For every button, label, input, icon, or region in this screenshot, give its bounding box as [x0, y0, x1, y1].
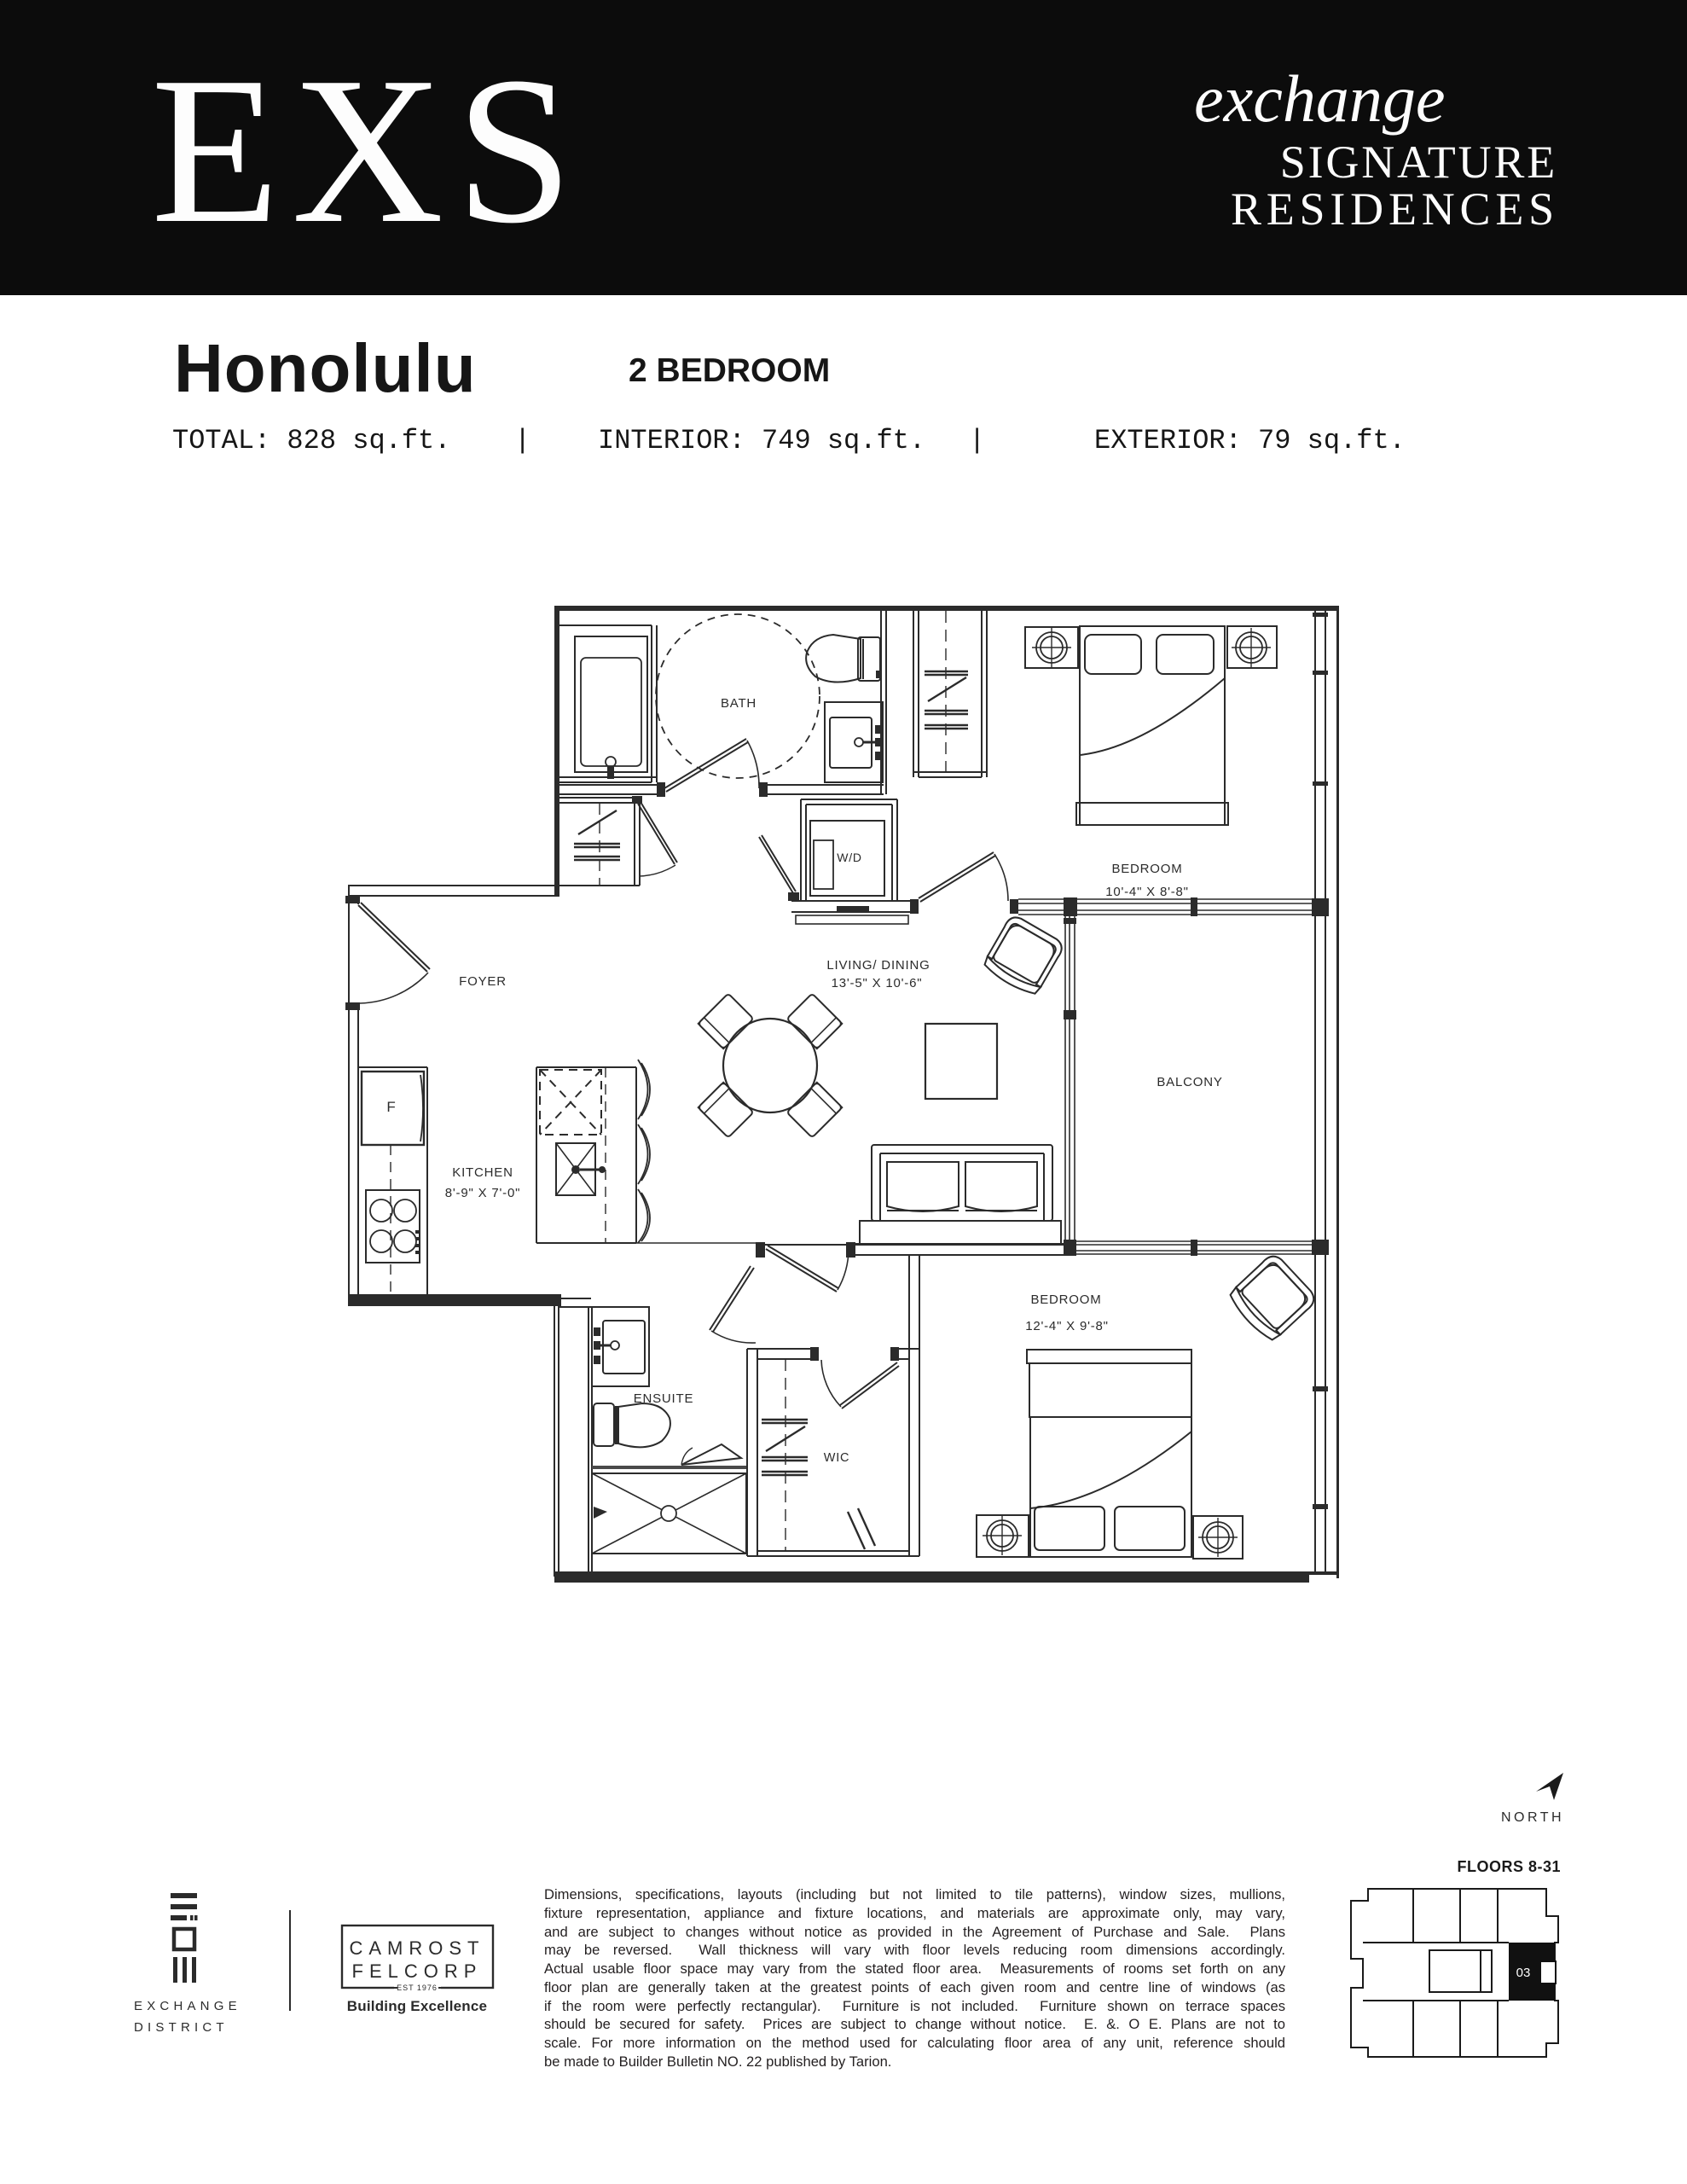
svg-text:BEDROOM: BEDROOM	[1030, 1292, 1101, 1307]
svg-text:BATH: BATH	[721, 696, 757, 711]
svg-text:10'-4" X 8'-8": 10'-4" X 8'-8"	[1105, 885, 1189, 899]
svg-text:DISTRICT: DISTRICT	[134, 2020, 229, 2035]
svg-text:BEDROOM: BEDROOM	[1111, 862, 1182, 876]
svg-text:NORTH: NORTH	[1501, 1810, 1564, 1825]
svg-text:F: F	[386, 1099, 396, 1115]
svg-text:03: 03	[1516, 1966, 1531, 1980]
svg-text:8'-9" X 7'-0": 8'-9" X 7'-0"	[445, 1186, 520, 1200]
svg-text:ENSUITE: ENSUITE	[634, 1391, 694, 1406]
svg-text:EXCHANGE: EXCHANGE	[134, 1999, 241, 2013]
svg-text:LIVING/ DINING: LIVING/ DINING	[826, 958, 930, 973]
svg-text:KITCHEN: KITCHEN	[452, 1165, 513, 1180]
svg-text:FELCORP: FELCORP	[352, 1960, 483, 1982]
svg-text:WIC: WIC	[824, 1451, 850, 1465]
svg-text:FOYER: FOYER	[459, 974, 507, 989]
svg-text:CAMROST: CAMROST	[350, 1937, 485, 1959]
svg-text:W/D: W/D	[837, 851, 862, 864]
svg-text:BALCONY: BALCONY	[1157, 1075, 1222, 1089]
svg-text:Building Excellence: Building Excellence	[347, 1998, 487, 2014]
svg-text:EST 1976: EST 1976	[397, 1984, 438, 1992]
svg-text:FLOORS 8-31: FLOORS 8-31	[1457, 1858, 1561, 1875]
svg-text:13'-5" X 10'-6": 13'-5" X 10'-6"	[832, 976, 923, 990]
svg-text:12'-4" X 9'-8": 12'-4" X 9'-8"	[1025, 1319, 1109, 1333]
